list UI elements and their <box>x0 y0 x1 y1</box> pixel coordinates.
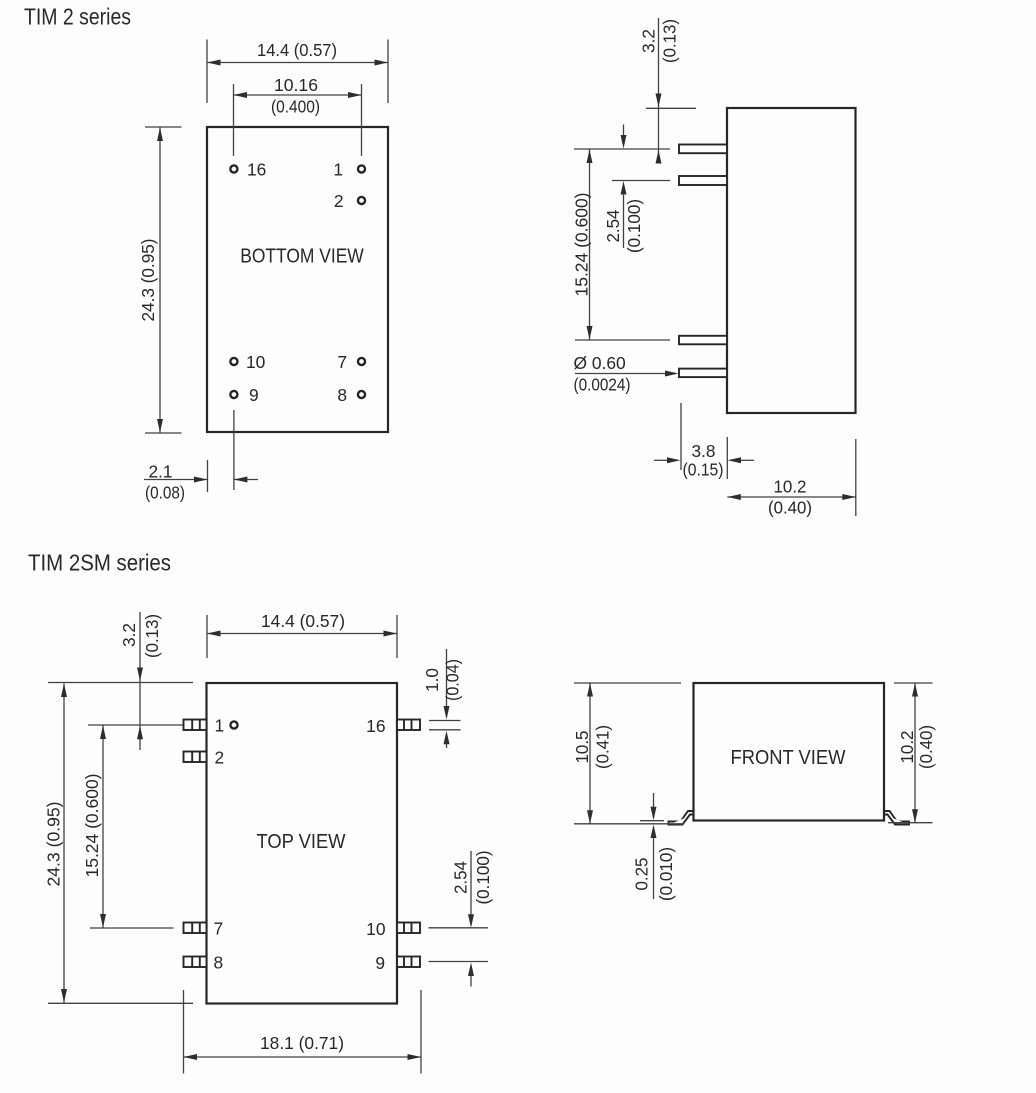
svg-text:(0.40): (0.40) <box>768 498 812 518</box>
svg-text:(0.13): (0.13) <box>142 614 162 658</box>
svg-text:(0.400): (0.400) <box>271 97 320 117</box>
svg-text:10.2: 10.2 <box>897 731 917 764</box>
svg-text:7: 7 <box>337 352 347 372</box>
svg-text:2.54: 2.54 <box>603 209 623 242</box>
svg-text:24.3 (0.95): 24.3 (0.95) <box>138 239 158 322</box>
svg-text:(0.13): (0.13) <box>660 19 680 63</box>
svg-text:10: 10 <box>366 919 385 939</box>
svg-text:TIM 2SM series: TIM 2SM series <box>28 550 171 576</box>
svg-text:(0.0024): (0.0024) <box>574 375 631 395</box>
svg-text:(0.010): (0.010) <box>656 847 676 901</box>
svg-text:9: 9 <box>375 953 385 973</box>
svg-text:3.2: 3.2 <box>639 29 659 53</box>
svg-text:3.2: 3.2 <box>119 623 139 647</box>
svg-text:2: 2 <box>334 191 344 211</box>
svg-text:1.0: 1.0 <box>422 668 442 692</box>
svg-text:7: 7 <box>214 918 224 938</box>
svg-text:1: 1 <box>215 715 225 735</box>
svg-text:2.1: 2.1 <box>149 462 173 482</box>
svg-text:(0.08): (0.08) <box>145 483 185 503</box>
svg-text:16: 16 <box>247 159 266 179</box>
svg-text:9: 9 <box>249 385 259 405</box>
svg-text:2: 2 <box>215 747 225 767</box>
svg-text:14.4 (0.57): 14.4 (0.57) <box>261 611 345 631</box>
svg-text:14.4 (0.57): 14.4 (0.57) <box>257 40 337 60</box>
svg-text:3.8: 3.8 <box>692 441 716 461</box>
svg-text:TOP VIEW: TOP VIEW <box>257 831 347 853</box>
svg-text:18.1 (0.71): 18.1 (0.71) <box>260 1033 344 1053</box>
svg-text:10.2: 10.2 <box>774 477 807 497</box>
svg-text:(0.15): (0.15) <box>683 460 724 480</box>
svg-text:15.24 (0.600): 15.24 (0.600) <box>82 774 102 878</box>
svg-text:(0.04): (0.04) <box>443 659 463 701</box>
svg-text:BOTTOM VIEW: BOTTOM VIEW <box>240 246 364 268</box>
svg-text:24.3 (0.95): 24.3 (0.95) <box>44 802 64 887</box>
svg-text:15.24 (0.600): 15.24 (0.600) <box>572 193 592 297</box>
svg-text:10.5: 10.5 <box>572 731 592 764</box>
svg-text:16: 16 <box>366 716 385 736</box>
svg-text:(0.40): (0.40) <box>916 725 936 769</box>
svg-text:2.54: 2.54 <box>451 861 471 894</box>
svg-text:1: 1 <box>333 159 343 179</box>
svg-text:Ø 0.60: Ø 0.60 <box>574 353 626 373</box>
svg-text:(0.100): (0.100) <box>624 199 644 253</box>
svg-text:8: 8 <box>337 385 347 405</box>
svg-text:(0.41): (0.41) <box>593 725 613 769</box>
svg-text:10: 10 <box>246 352 265 372</box>
svg-text:TIM 2 series: TIM 2 series <box>24 4 131 30</box>
svg-text:(0.100): (0.100) <box>473 851 493 905</box>
svg-text:8: 8 <box>214 952 224 972</box>
svg-text:FRONT VIEW: FRONT VIEW <box>731 747 847 769</box>
svg-text:0.25: 0.25 <box>632 858 652 891</box>
svg-text:10.16: 10.16 <box>274 75 318 95</box>
